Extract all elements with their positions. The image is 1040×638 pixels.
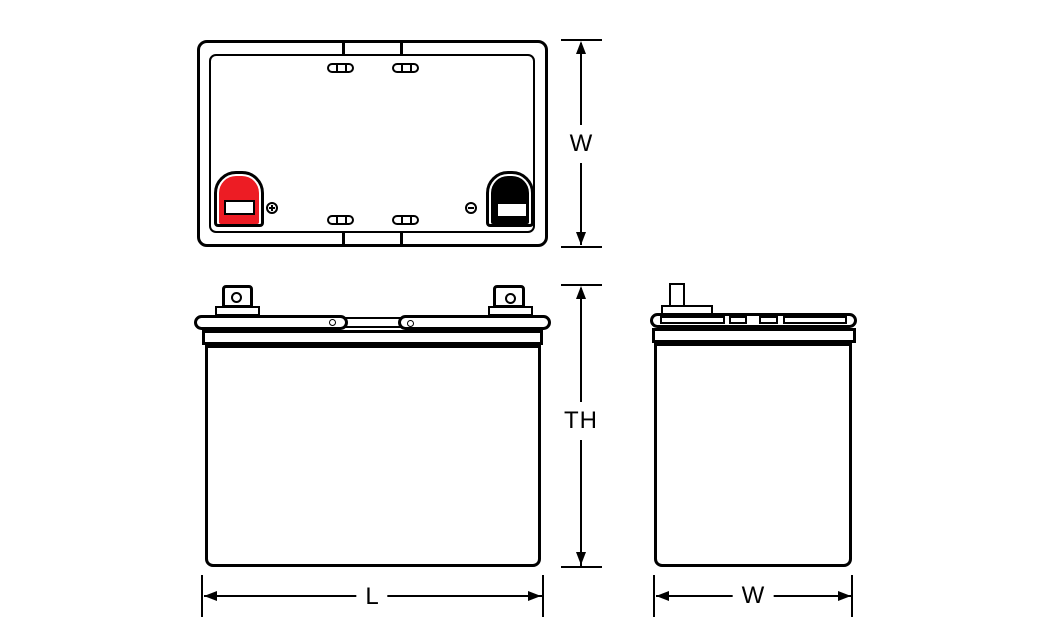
- arrow-up-icon: [576, 41, 586, 54]
- lid-slot: [759, 316, 778, 324]
- dimension-label-l: L: [356, 585, 387, 609]
- dimension-label-w-side: W: [733, 584, 774, 608]
- vent-slot: [327, 63, 354, 73]
- arrow-left-icon: [656, 591, 669, 601]
- dimension-tick: [561, 246, 602, 248]
- arrow-left-icon: [204, 591, 217, 601]
- lid-rail-right: [398, 315, 551, 330]
- minus-circle-icon: [465, 202, 477, 214]
- handle-pin: [407, 320, 414, 327]
- extension-line: [201, 575, 203, 617]
- arrow-up-icon: [576, 286, 586, 299]
- vent-slot: [327, 215, 354, 225]
- arrow-right-icon: [838, 591, 851, 601]
- post-hole: [231, 292, 242, 303]
- handle-pin: [329, 319, 336, 326]
- case-band-front: [202, 330, 543, 345]
- case-body-front: [205, 345, 541, 567]
- negative-terminal-cover: [486, 171, 534, 227]
- handle-notch: [400, 40, 403, 55]
- lid-slot: [660, 316, 725, 324]
- negative-terminal-black-boot: [491, 176, 529, 224]
- vent-slot: [392, 63, 419, 73]
- arrow-right-icon: [528, 591, 541, 601]
- vent-slot: [392, 215, 419, 225]
- negative-terminal-label-window: [498, 204, 526, 216]
- arrow-down-icon: [576, 232, 586, 245]
- case-body-side: [654, 343, 852, 567]
- handle-notch: [342, 40, 345, 55]
- case-band-side: [652, 328, 856, 343]
- lid-slot: [783, 316, 847, 324]
- carry-handle: [340, 317, 406, 328]
- extension-line: [653, 575, 655, 617]
- positive-terminal-label-window: [224, 200, 255, 215]
- lid-slot: [729, 316, 747, 324]
- handle-notch: [400, 232, 403, 247]
- arrow-down-icon: [576, 552, 586, 565]
- dimension-label-th: TH: [561, 402, 601, 440]
- terminal-post-side: [669, 283, 685, 307]
- handle-notch: [342, 232, 345, 247]
- positive-terminal-cover: [214, 171, 264, 227]
- plus-circle-icon: [266, 202, 278, 214]
- battery-dimension-diagram: W TH L: [0, 0, 1040, 638]
- dimension-tick: [561, 566, 602, 568]
- dimension-label-w-top: W: [567, 125, 596, 163]
- post-hole: [505, 293, 516, 304]
- lid-rail-left: [194, 315, 348, 330]
- extension-line: [542, 575, 544, 617]
